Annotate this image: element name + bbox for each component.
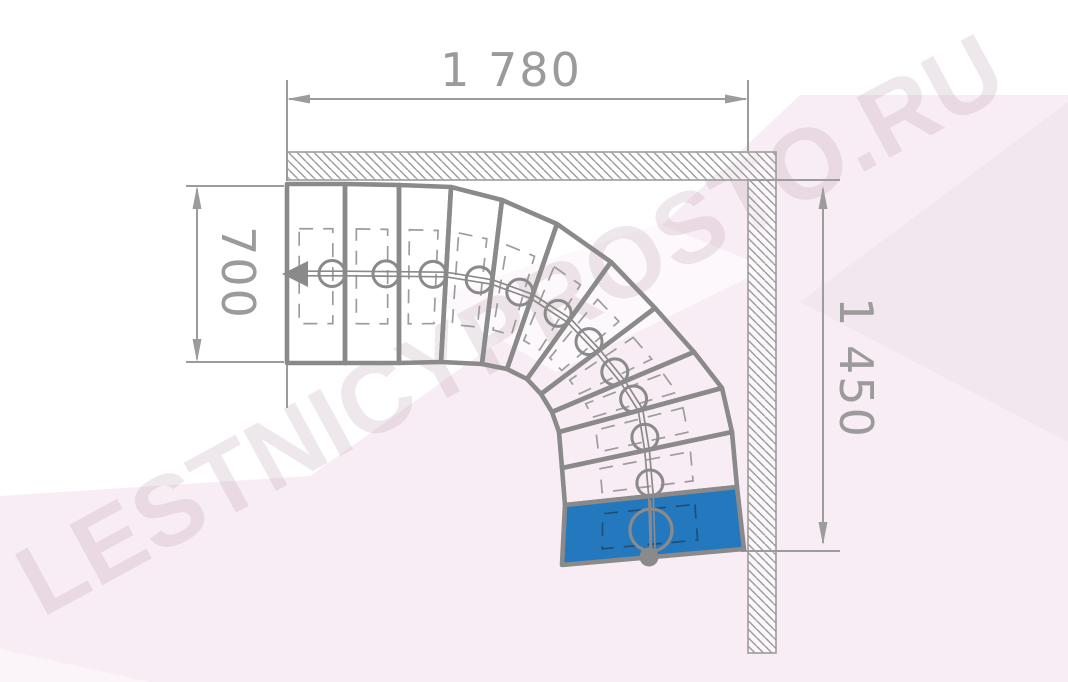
top-wall-hatch (287, 152, 776, 180)
right-wall (748, 180, 776, 653)
dim-top-arrow-right (725, 95, 748, 104)
dim-top-arrow-left (287, 95, 310, 104)
dim-left-arrow-down (193, 339, 202, 362)
top-wall (287, 152, 776, 180)
walkline-step-marker (373, 261, 399, 287)
walkline-start-dot (640, 548, 659, 567)
dim-left-arrow-up (193, 186, 202, 209)
dim-left-label: 700 (211, 226, 265, 320)
dim-right-label: 1 450 (829, 297, 883, 439)
stair-plan-drawing: LESTNICYPROSTO.RU 1 780 700 1 450 (0, 0, 1068, 682)
stair-plan-page: LESTNICYPROSTO.RU 1 780 700 1 450 (0, 0, 1068, 682)
walkline-step-marker (420, 261, 446, 287)
dim-top-label: 1 780 (440, 43, 582, 97)
right-wall-hatch (748, 180, 776, 653)
